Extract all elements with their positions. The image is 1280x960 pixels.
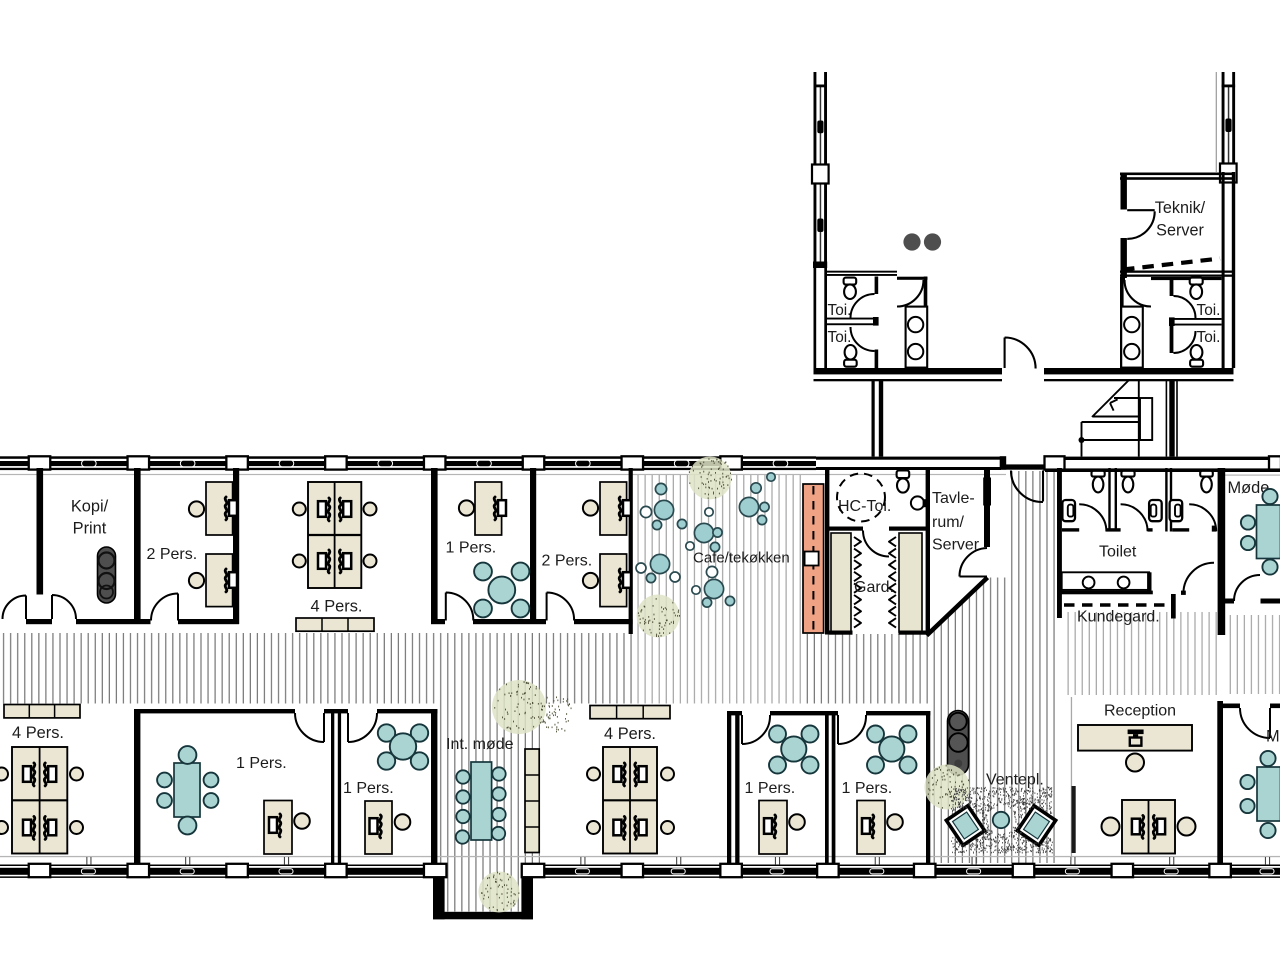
- svg-text:4 Pers.: 4 Pers.: [311, 598, 363, 616]
- svg-text:Møde: Møde: [1266, 728, 1280, 746]
- svg-text:Server: Server: [932, 537, 980, 554]
- svg-text:Cafe/tekøkken: Cafe/tekøkken: [693, 550, 790, 567]
- svg-text:Teknik/: Teknik/: [1155, 199, 1206, 217]
- svg-text:2 Pers.: 2 Pers.: [542, 553, 593, 570]
- svg-text:1 Pers.: 1 Pers.: [745, 780, 796, 797]
- svg-text:Ventepl.: Ventepl.: [986, 772, 1044, 789]
- svg-text:1 Pers.: 1 Pers.: [446, 540, 497, 557]
- svg-text:1 Pers.: 1 Pers.: [236, 755, 287, 772]
- svg-text:Print: Print: [73, 520, 107, 538]
- svg-text:Server: Server: [1156, 222, 1204, 240]
- svg-text:Toilet: Toilet: [1099, 544, 1137, 561]
- svg-text:Toi.: Toi.: [828, 302, 852, 319]
- svg-text:Toi.: Toi.: [1197, 302, 1221, 319]
- svg-text:rum/: rum/: [932, 514, 965, 531]
- svg-text:2 Pers.: 2 Pers.: [147, 546, 198, 563]
- svg-text:4 Pers.: 4 Pers.: [604, 725, 656, 743]
- svg-text:Tavle-: Tavle-: [932, 490, 975, 507]
- svg-text:1 Pers.: 1 Pers.: [343, 780, 394, 797]
- svg-text:Kopi/: Kopi/: [71, 498, 109, 516]
- svg-text:Int. møde: Int. møde: [446, 736, 514, 753]
- svg-text:Reception: Reception: [1104, 703, 1176, 720]
- svg-text:HC-Toi.: HC-Toi.: [838, 498, 891, 515]
- svg-text:Kundegard.: Kundegard.: [1077, 609, 1160, 626]
- svg-text:4 Pers.: 4 Pers.: [12, 724, 64, 742]
- svg-text:Toi.: Toi.: [1197, 329, 1221, 346]
- svg-text:Gard.: Gard.: [854, 579, 894, 596]
- svg-text:1 Pers.: 1 Pers.: [842, 780, 893, 797]
- svg-text:Toi.: Toi.: [828, 329, 852, 346]
